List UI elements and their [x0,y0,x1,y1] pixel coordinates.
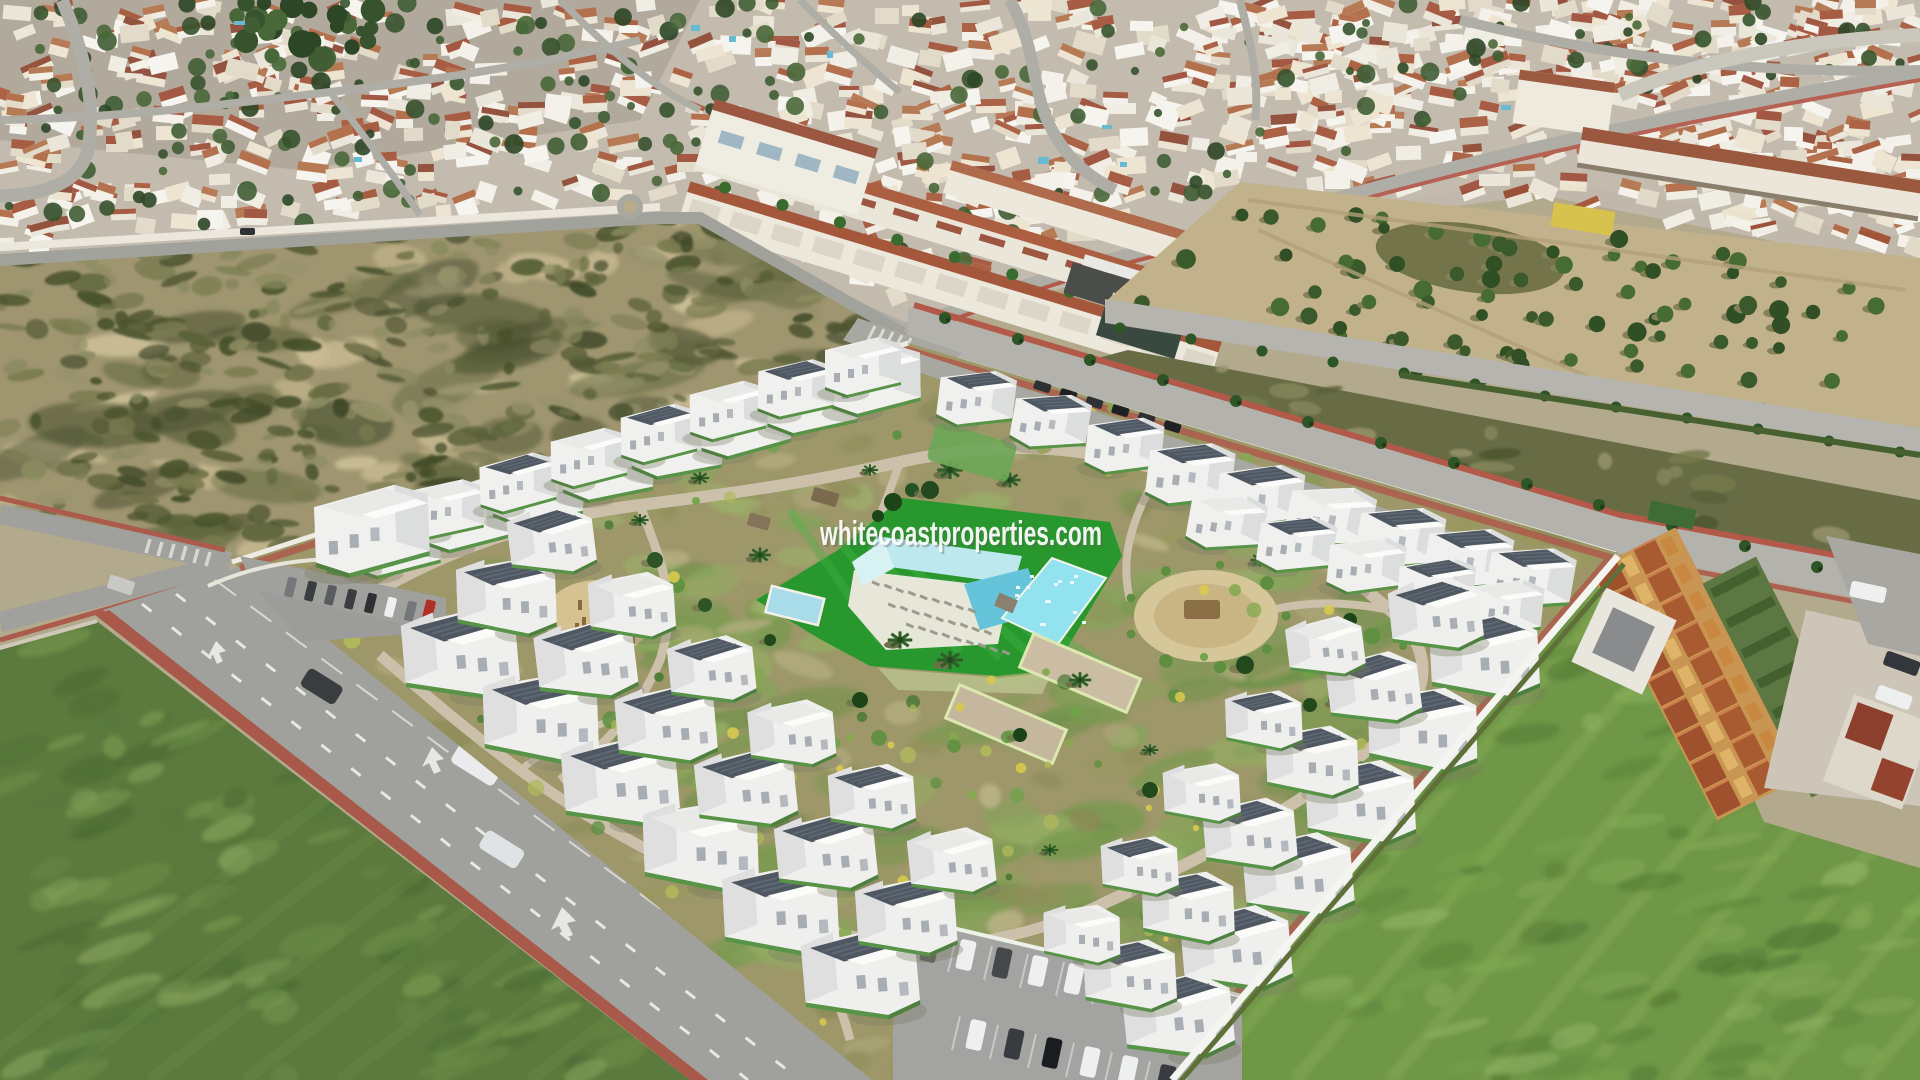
svg-text:whitecoastproperties.com: whitecoastproperties.com [819,515,1102,553]
